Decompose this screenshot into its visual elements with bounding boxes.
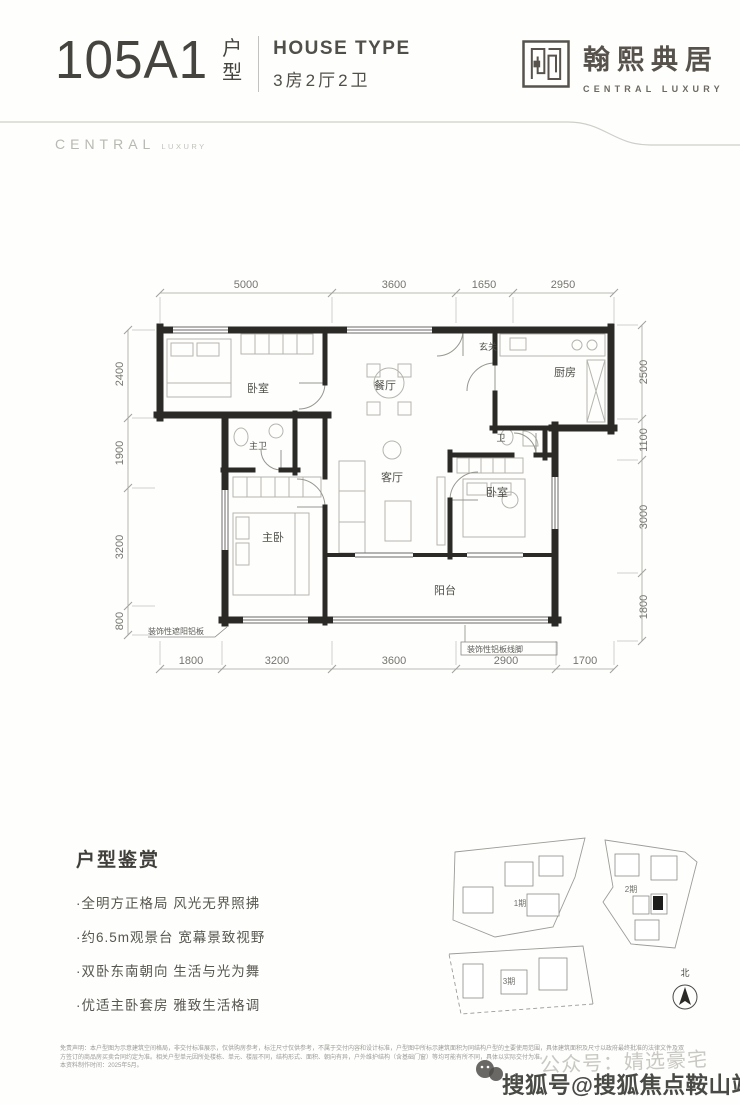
brand-name-en: CENTRAL LUXURY bbox=[583, 84, 724, 94]
room-label-bath: 卫 bbox=[496, 433, 505, 443]
callouts: 装饰性遮阳铝板 装饰性铝板线脚 bbox=[148, 625, 557, 655]
highlighted-unit bbox=[653, 896, 663, 910]
decorative-band: CENTRALLUXURY bbox=[0, 112, 740, 162]
header: 105A1 户 型 HOUSE TYPE 3房2厅2卫 bbox=[55, 34, 411, 92]
site-plan: 1期 2期 3期 北 bbox=[435, 832, 725, 1032]
dim-top-0: 5000 bbox=[234, 279, 258, 291]
dim-bottom-2: 3600 bbox=[382, 655, 406, 667]
features-section: 户型鉴赏 ·全明方正格局 风光无界照拂 ·约6.5m观景台 宽幕景致视野 ·双卧… bbox=[76, 845, 265, 1028]
unit-label-top: 户 bbox=[222, 37, 242, 61]
watermark-sohu: 搜狐号@搜狐焦点鞍山站 bbox=[502, 1068, 740, 1100]
dim-bottom-4: 1700 bbox=[573, 655, 597, 667]
north-arrow-icon bbox=[679, 987, 691, 1005]
unit-number: 105A1 bbox=[55, 34, 208, 86]
seal-icon bbox=[521, 38, 571, 90]
room-label-living: 客厅 bbox=[381, 470, 403, 484]
dim-right-2: 3000 bbox=[638, 505, 650, 529]
band-text-main: CENTRAL bbox=[55, 136, 155, 152]
dim-bottom-0: 1800 bbox=[179, 655, 203, 667]
house-type: HOUSE TYPE 3房2厅2卫 bbox=[273, 38, 410, 91]
feature-item: ·约6.5m观景台 宽幕景致视野 bbox=[76, 926, 265, 946]
dim-right-3: 1800 bbox=[638, 595, 650, 619]
room-label-kitchen: 厨房 bbox=[554, 366, 576, 379]
building-footprints bbox=[463, 854, 677, 998]
dim-left-2: 3200 bbox=[114, 535, 126, 559]
dim-bottom-1: 3200 bbox=[265, 655, 289, 667]
room-label-balcony: 阳台 bbox=[434, 583, 456, 597]
parcel-label-1: 1期 bbox=[514, 899, 526, 908]
unit-label: 户 型 bbox=[222, 37, 242, 85]
house-type-en: HOUSE TYPE bbox=[273, 38, 410, 60]
dim-top-3: 2950 bbox=[551, 279, 575, 291]
band-text-sub: LUXURY bbox=[161, 142, 206, 151]
parcel-label-2: 2期 bbox=[625, 885, 637, 894]
parcel-label-3: 3期 bbox=[503, 977, 515, 986]
room-label-bedroom1: 卧室 bbox=[247, 381, 269, 395]
features-title: 户型鉴赏 bbox=[76, 845, 265, 872]
dim-left-3: 800 bbox=[114, 612, 126, 630]
header-divider bbox=[258, 36, 259, 92]
watermark-logo-icon bbox=[474, 1058, 504, 1089]
floor-plan: 卧室 餐厅 玄关 厨房 主卫 卫 客厅 卧室 主卧 阳台 bbox=[55, 265, 685, 690]
room-label-master-bedroom: 主卧 bbox=[262, 531, 284, 544]
brand-name-cn: 翰熙典居 bbox=[583, 38, 724, 77]
callout-left-label: 装饰性遮阳铝板 bbox=[148, 626, 204, 636]
dim-right-1: 1100 bbox=[638, 428, 650, 452]
room-label-master-bath: 主卫 bbox=[249, 440, 267, 451]
unit-label-bottom: 型 bbox=[222, 61, 242, 85]
dim-bottom-3: 2900 bbox=[494, 655, 518, 667]
dim-top-2: 1650 bbox=[472, 279, 496, 291]
dim-top-1: 3600 bbox=[382, 279, 406, 291]
feature-item: ·双卧东南朝向 生活与光为舞 bbox=[76, 960, 265, 980]
dim-left-1: 1900 bbox=[114, 441, 126, 465]
dim-right-0: 2500 bbox=[638, 360, 650, 384]
brand-logo: 翰熙典居 CENTRAL LUXURY bbox=[521, 38, 724, 94]
floor-plan-drawing: 卧室 餐厅 玄关 厨房 主卫 卫 客厅 卧室 主卧 阳台 bbox=[55, 265, 685, 685]
features-list: ·全明方正格局 风光无界照拂 ·约6.5m观景台 宽幕景致视野 ·双卧东南朝向 … bbox=[76, 892, 265, 1014]
room-label-dining: 餐厅 bbox=[374, 378, 396, 392]
feature-item: ·全明方正格局 风光无界照拂 bbox=[76, 892, 265, 912]
north-label: 北 bbox=[680, 968, 689, 978]
room-label-entry: 玄关 bbox=[479, 341, 497, 352]
callout-right-label: 装饰性铝板线脚 bbox=[467, 644, 523, 654]
room-label-bedroom2: 卧室 bbox=[486, 485, 508, 499]
site-plan-drawing: 1期 2期 3期 北 bbox=[435, 832, 725, 1027]
house-type-cn: 3房2厅2卫 bbox=[273, 66, 410, 91]
band-text: CENTRALLUXURY bbox=[55, 136, 207, 152]
page: 105A1 户 型 HOUSE TYPE 3房2厅2卫 翰熙典居 CENTRAL… bbox=[0, 0, 740, 1105]
unit-variant: A1 bbox=[143, 30, 208, 90]
north-compass: 北 bbox=[673, 968, 697, 1009]
dim-left-0: 2400 bbox=[114, 362, 126, 386]
unit-number-value: 105 bbox=[55, 30, 143, 90]
feature-item: ·优适主卧套房 雅致生活格调 bbox=[76, 994, 265, 1014]
